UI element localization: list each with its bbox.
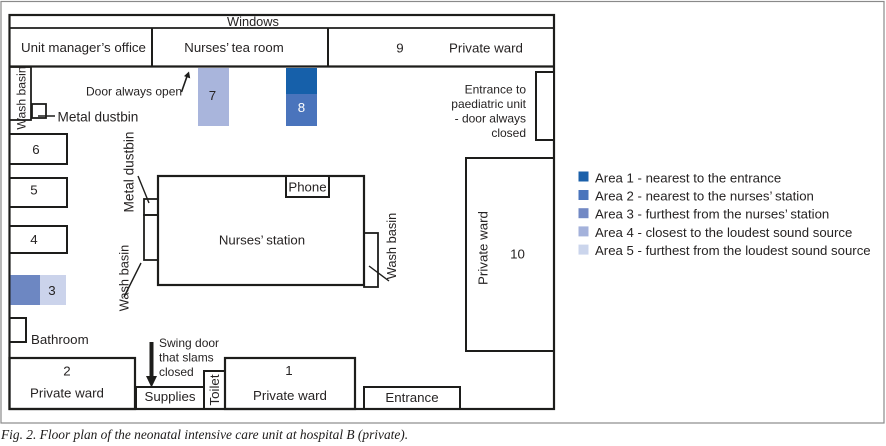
svg-text:Private ward: Private ward (30, 386, 104, 401)
svg-text:Wash basin: Wash basin (117, 245, 132, 311)
svg-text:Phone: Phone (288, 180, 326, 195)
svg-text:2: 2 (63, 363, 70, 378)
svg-text:Supplies: Supplies (144, 389, 195, 404)
svg-text:Nurses’ tea room: Nurses’ tea room (184, 40, 283, 55)
svg-text:Area 2 - nearest to the nurses: Area 2 - nearest to the nurses’ station (595, 188, 814, 203)
svg-text:Private ward: Private ward (476, 211, 491, 285)
svg-text:Windows: Windows (227, 14, 279, 29)
svg-text:paediatric unit: paediatric unit (451, 97, 526, 111)
svg-text:10: 10 (510, 247, 525, 262)
svg-text:Area 4 - closest to the loudes: Area 4 - closest to the loudest sound so… (595, 225, 852, 240)
svg-text:Area 3 - furthest from the nur: Area 3 - furthest from the nurses’ stati… (595, 207, 829, 222)
svg-text:4: 4 (30, 232, 37, 247)
svg-text:5: 5 (30, 183, 37, 198)
svg-text:Entrance to: Entrance to (465, 83, 527, 97)
svg-text:Metal dustbin: Metal dustbin (121, 132, 136, 213)
svg-text:9: 9 (396, 40, 403, 55)
svg-text:Door always open: Door always open (86, 85, 182, 99)
svg-text:Wash basin: Wash basin (384, 213, 399, 279)
svg-text:that slams: that slams (159, 350, 214, 364)
svg-text:Bathroom: Bathroom (31, 332, 89, 347)
svg-text:1: 1 (285, 363, 292, 378)
svg-text:Wash basin: Wash basin (14, 66, 28, 129)
svg-text:Private ward: Private ward (449, 40, 523, 55)
svg-text:closed: closed (159, 365, 194, 379)
svg-text:- door always: - door always (455, 112, 526, 126)
svg-text:Nurses’ station: Nurses’ station (219, 233, 305, 248)
svg-text:Swing door: Swing door (159, 336, 219, 350)
svg-text:Private ward: Private ward (253, 388, 327, 403)
svg-text:6: 6 (32, 142, 39, 157)
svg-text:Toilet: Toilet (207, 374, 222, 405)
svg-text:closed: closed (491, 126, 526, 140)
svg-text:7: 7 (209, 88, 216, 103)
svg-text:Metal dustbin: Metal dustbin (58, 109, 139, 124)
svg-text:8: 8 (298, 100, 305, 115)
svg-text:Entrance: Entrance (385, 390, 438, 405)
svg-text:Area 5 - furthest from the lou: Area 5 - furthest from the loudest sound… (595, 243, 871, 258)
svg-text:Unit manager’s office: Unit manager’s office (21, 40, 146, 55)
svg-text:3: 3 (48, 283, 55, 298)
svg-text:Fig. 2. Floor plan of the neon: Fig. 2. Floor plan of the neonatal inten… (0, 427, 408, 442)
svg-text:Area 1 - nearest to the entran: Area 1 - nearest to the entrance (595, 170, 781, 185)
